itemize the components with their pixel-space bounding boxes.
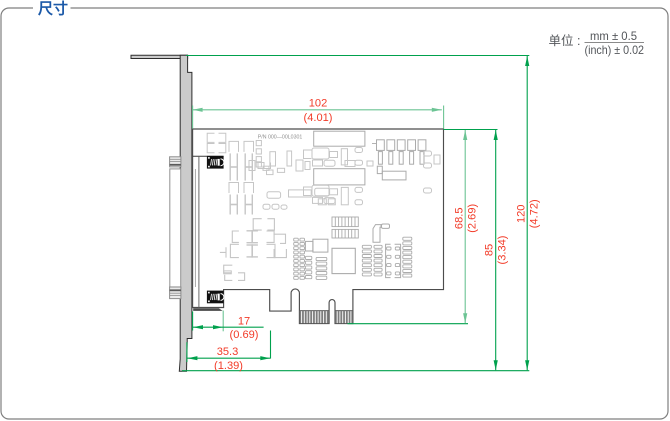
svg-text:(1.39): (1.39)	[214, 360, 243, 372]
svg-text:35.3: 35.3	[217, 346, 239, 358]
svg-text:68.5(2.69): 68.5(2.69)	[453, 204, 478, 233]
svg-text:102: 102	[309, 98, 328, 110]
svg-text:(inch) ± 0.02: (inch) ± 0.02	[585, 43, 645, 57]
svg-text:17: 17	[238, 315, 250, 327]
svg-text:尺寸: 尺寸	[38, 0, 68, 18]
svg-text:mm ± 0.5: mm ± 0.5	[590, 29, 637, 43]
svg-text:单位 :: 单位 :	[549, 33, 581, 48]
svg-text:(0.69): (0.69)	[230, 329, 259, 341]
svg-text:(4.01): (4.01)	[304, 112, 333, 124]
svg-text:P/N 000—00L0301: P/N 000—00L0301	[258, 135, 303, 141]
